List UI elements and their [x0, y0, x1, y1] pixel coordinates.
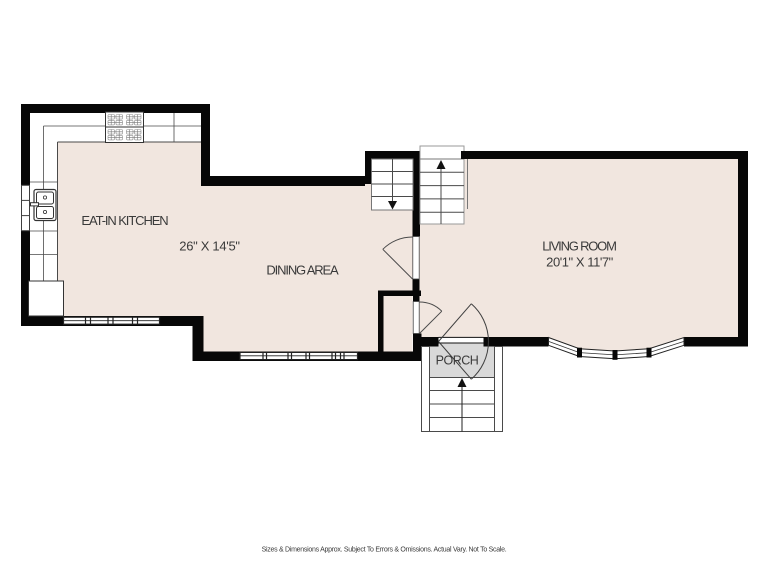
svg-text:Sizes & Dimensions Approx. Sub: Sizes & Dimensions Approx. Subject To Er…	[262, 547, 507, 554]
svg-text:20'1" X 11'7": 20'1" X 11'7"	[546, 255, 613, 270]
svg-text:EAT-IN KITCHEN: EAT-IN KITCHEN	[81, 213, 168, 228]
svg-text:PORCH: PORCH	[436, 354, 479, 368]
svg-text:DINING AREA: DINING AREA	[266, 263, 339, 278]
svg-text:LIVING ROOM: LIVING ROOM	[542, 239, 616, 254]
svg-text:26" X 14'5": 26" X 14'5"	[179, 239, 240, 254]
